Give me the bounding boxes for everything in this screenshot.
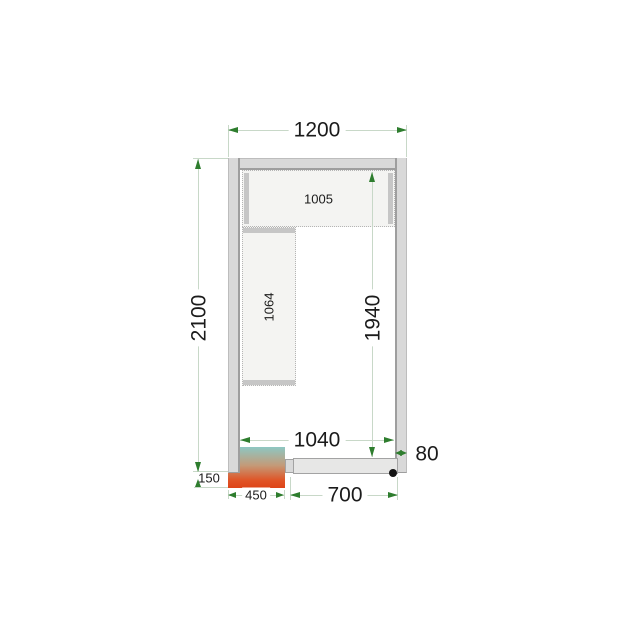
wall-right xyxy=(395,158,407,473)
wall-left xyxy=(228,158,240,473)
outer-depth-label: 2100 xyxy=(188,290,211,347)
wall-top xyxy=(228,158,407,170)
shelf-rail-right xyxy=(388,173,393,224)
coldroom-floorplan-diagram: 1005 1064 1200 2100 1940 1040 xyxy=(0,0,630,630)
arrowhead-left xyxy=(240,437,250,443)
arrowhead-left xyxy=(290,492,300,498)
inner-depth-label: 1940 xyxy=(362,290,385,347)
arrowhead-right xyxy=(276,492,284,498)
arrowhead-right xyxy=(397,127,407,133)
wall-thickness-label: 80 xyxy=(410,443,443,466)
door-width-label: 700 xyxy=(322,484,367,507)
outer-width-label: 1200 xyxy=(289,119,346,142)
arrowhead-right xyxy=(384,437,394,443)
extension-line xyxy=(194,487,228,488)
shelf-rail-top xyxy=(243,228,295,233)
inner-width-label: 1040 xyxy=(289,429,346,452)
arrowhead-left xyxy=(228,127,238,133)
door-hinge-dot xyxy=(389,469,397,477)
shelf-left: 1064 xyxy=(242,227,296,386)
arrowhead-up xyxy=(369,172,375,182)
arrowhead-right xyxy=(388,492,398,498)
shelf-top-dimension-label: 1005 xyxy=(301,191,336,206)
arrowhead-down xyxy=(369,447,375,457)
door-panel xyxy=(293,458,398,474)
extension-line xyxy=(284,490,285,499)
arrowhead-right xyxy=(400,450,407,456)
shelf-left-dimension-label: 1064 xyxy=(262,289,277,324)
shelf-rail-bottom xyxy=(243,380,295,385)
unit-width-label: 450 xyxy=(242,488,270,503)
arrowhead-up xyxy=(195,159,201,169)
unit-overhang-label: 150 xyxy=(195,471,223,486)
arrowhead-left xyxy=(228,492,236,498)
shelf-rail-left xyxy=(244,173,249,224)
